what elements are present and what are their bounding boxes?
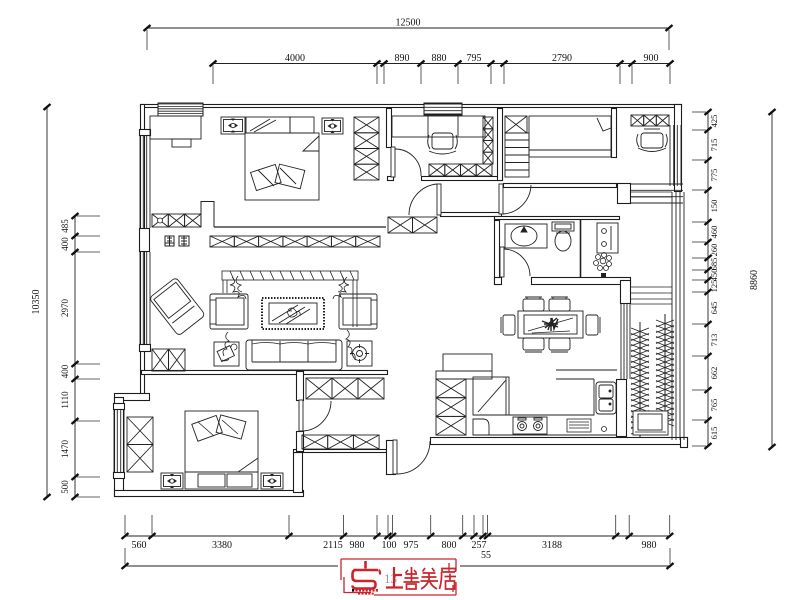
svg-text:3188: 3188 <box>542 540 562 551</box>
svg-text:485: 485 <box>60 219 70 233</box>
svg-text:880: 880 <box>432 53 447 64</box>
svg-text:645: 645 <box>709 302 719 315</box>
svg-text:900: 900 <box>644 53 659 64</box>
svg-text:150: 150 <box>709 200 719 213</box>
svg-text:10350: 10350 <box>31 290 42 315</box>
svg-text:1470: 1470 <box>60 440 70 459</box>
svg-text:615: 615 <box>709 427 719 440</box>
svg-text:980: 980 <box>350 540 365 551</box>
svg-text:55: 55 <box>481 550 491 561</box>
svg-text:4000: 4000 <box>285 53 305 64</box>
svg-text:425: 425 <box>709 115 719 128</box>
svg-text:662: 662 <box>709 367 719 380</box>
svg-text:800: 800 <box>442 540 457 551</box>
svg-text:685: 685 <box>709 258 719 271</box>
svg-text:2115: 2115 <box>323 540 343 551</box>
svg-text:125: 125 <box>709 280 719 293</box>
svg-text:260: 260 <box>709 244 719 257</box>
svg-text:8860: 8860 <box>749 270 760 290</box>
svg-text:765: 765 <box>709 399 719 412</box>
svg-text:890: 890 <box>395 53 410 64</box>
svg-text:713: 713 <box>709 334 719 347</box>
svg-text:450: 450 <box>709 269 719 282</box>
svg-text:460: 460 <box>709 226 719 239</box>
svg-text:400: 400 <box>60 237 70 251</box>
svg-text:400: 400 <box>60 364 70 378</box>
svg-text:975: 975 <box>404 540 419 551</box>
svg-text:795: 795 <box>467 53 482 64</box>
svg-text:1110: 1110 <box>60 391 70 409</box>
svg-text:2790: 2790 <box>552 53 572 64</box>
svg-text:715: 715 <box>709 139 719 152</box>
svg-text:500: 500 <box>60 480 70 494</box>
svg-text:2970: 2970 <box>60 299 70 318</box>
svg-text:980: 980 <box>642 540 657 551</box>
svg-text:100: 100 <box>382 540 397 551</box>
svg-text:775: 775 <box>709 169 719 182</box>
svg-text:3380: 3380 <box>212 540 232 551</box>
svg-text:560: 560 <box>132 540 147 551</box>
svg-text:12500: 12500 <box>396 18 421 29</box>
